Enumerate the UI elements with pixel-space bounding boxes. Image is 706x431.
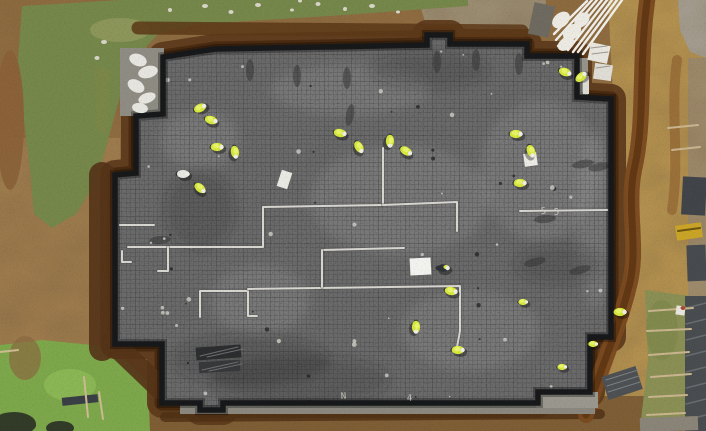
scene-canvas: N455: [0, 0, 706, 431]
aerial-construction-photo: N455: [0, 0, 706, 431]
photo-grain-light: [0, 0, 706, 431]
